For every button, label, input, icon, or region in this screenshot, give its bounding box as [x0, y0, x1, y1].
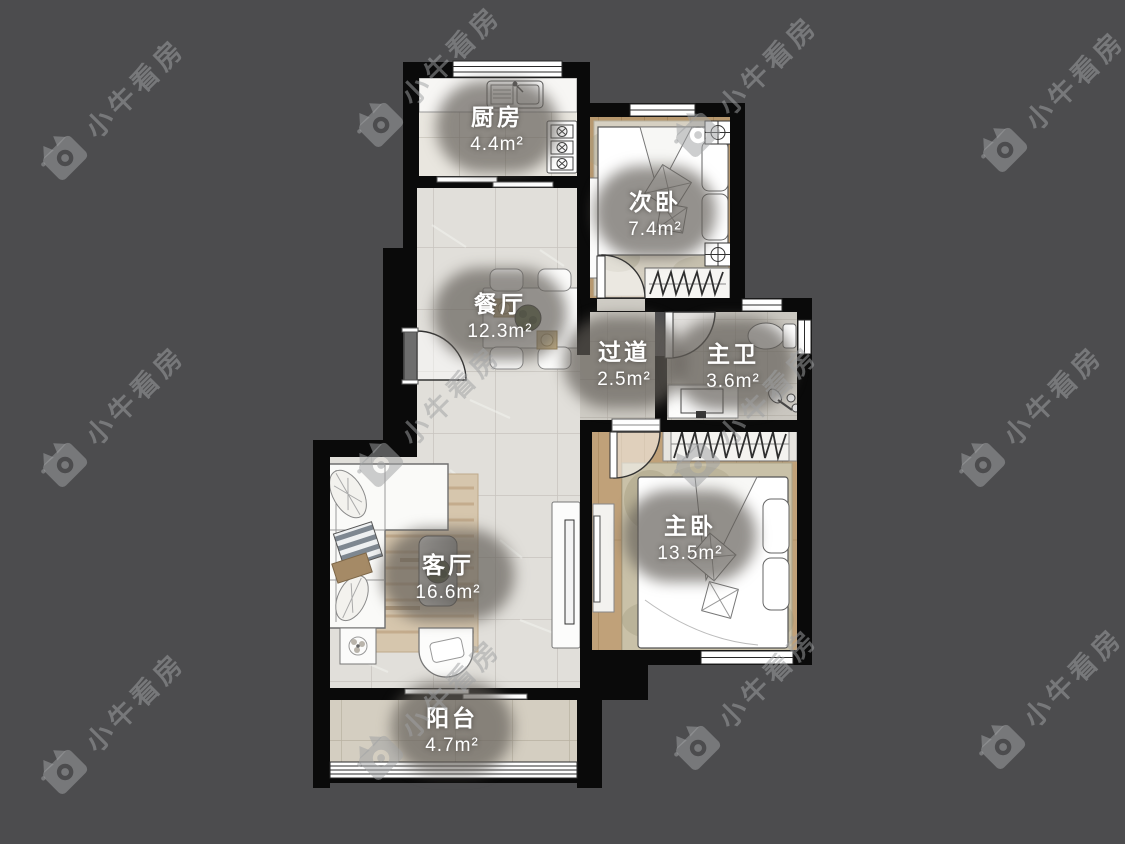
living-master-divider	[580, 432, 592, 700]
kitchen-right-wall	[577, 62, 590, 312]
pillow	[702, 141, 728, 191]
toilet	[748, 323, 796, 349]
tv	[594, 516, 600, 602]
kitchen-sink	[487, 81, 543, 108]
balcony-bottom-edge	[330, 778, 577, 783]
floor-plan	[0, 0, 1125, 844]
master-bed	[638, 477, 789, 648]
coffee-table	[419, 536, 457, 606]
stove	[547, 121, 577, 173]
table-plant	[515, 305, 541, 331]
balcony-right-wall	[577, 688, 602, 788]
ac-symbol	[705, 243, 731, 266]
second-wardrobe	[645, 268, 730, 300]
entry-pier	[383, 248, 403, 447]
dining-chair	[538, 269, 571, 291]
master-bedroom-window	[701, 651, 793, 664]
balcony-left-wall	[313, 700, 330, 788]
balcony-floor	[330, 700, 577, 764]
balcony-window	[330, 762, 577, 778]
master-tv-cabinet	[593, 504, 614, 612]
second-bed	[598, 127, 728, 255]
ac-symbol	[705, 121, 731, 144]
floorplan-canvas: 厨房 4.4m² 次卧 7.4m² 餐厅 12.3m² 过道 2.5m² 主卫 …	[0, 0, 1125, 844]
kitchen-left-wall	[403, 62, 419, 188]
bathroom-right-window	[798, 320, 811, 354]
dining-chair	[490, 347, 523, 369]
living-left-wall	[313, 457, 330, 700]
pillow	[702, 194, 728, 240]
master-wardrobe	[663, 427, 797, 461]
corner-block	[592, 650, 648, 700]
tv-cabinet	[552, 502, 580, 648]
kitchen-window	[453, 61, 562, 77]
pillow	[763, 499, 789, 553]
second-bedroom-right-wall	[730, 103, 745, 312]
placemat	[494, 299, 514, 317]
bathroom-top-window	[742, 299, 782, 311]
side-table	[340, 628, 376, 664]
hallway-floor	[580, 312, 655, 432]
armchair	[419, 628, 473, 677]
tv	[565, 520, 574, 624]
bathroom-sink	[668, 385, 738, 424]
hallway-stub-wall	[577, 312, 590, 355]
dining-chair	[490, 269, 523, 291]
pillow	[763, 558, 789, 610]
living-topleft-wall	[313, 440, 417, 457]
table-plant	[426, 559, 450, 583]
dining-left-wall-lower	[403, 383, 417, 443]
dining-chair	[538, 347, 571, 369]
dining-left-wall-upper	[403, 188, 417, 330]
placemat	[537, 331, 557, 349]
deco-pillow	[657, 203, 687, 233]
second-bedroom-window	[630, 104, 695, 116]
second-bedroom-door-opening	[597, 299, 645, 311]
bathroom-left-wall	[655, 356, 667, 422]
